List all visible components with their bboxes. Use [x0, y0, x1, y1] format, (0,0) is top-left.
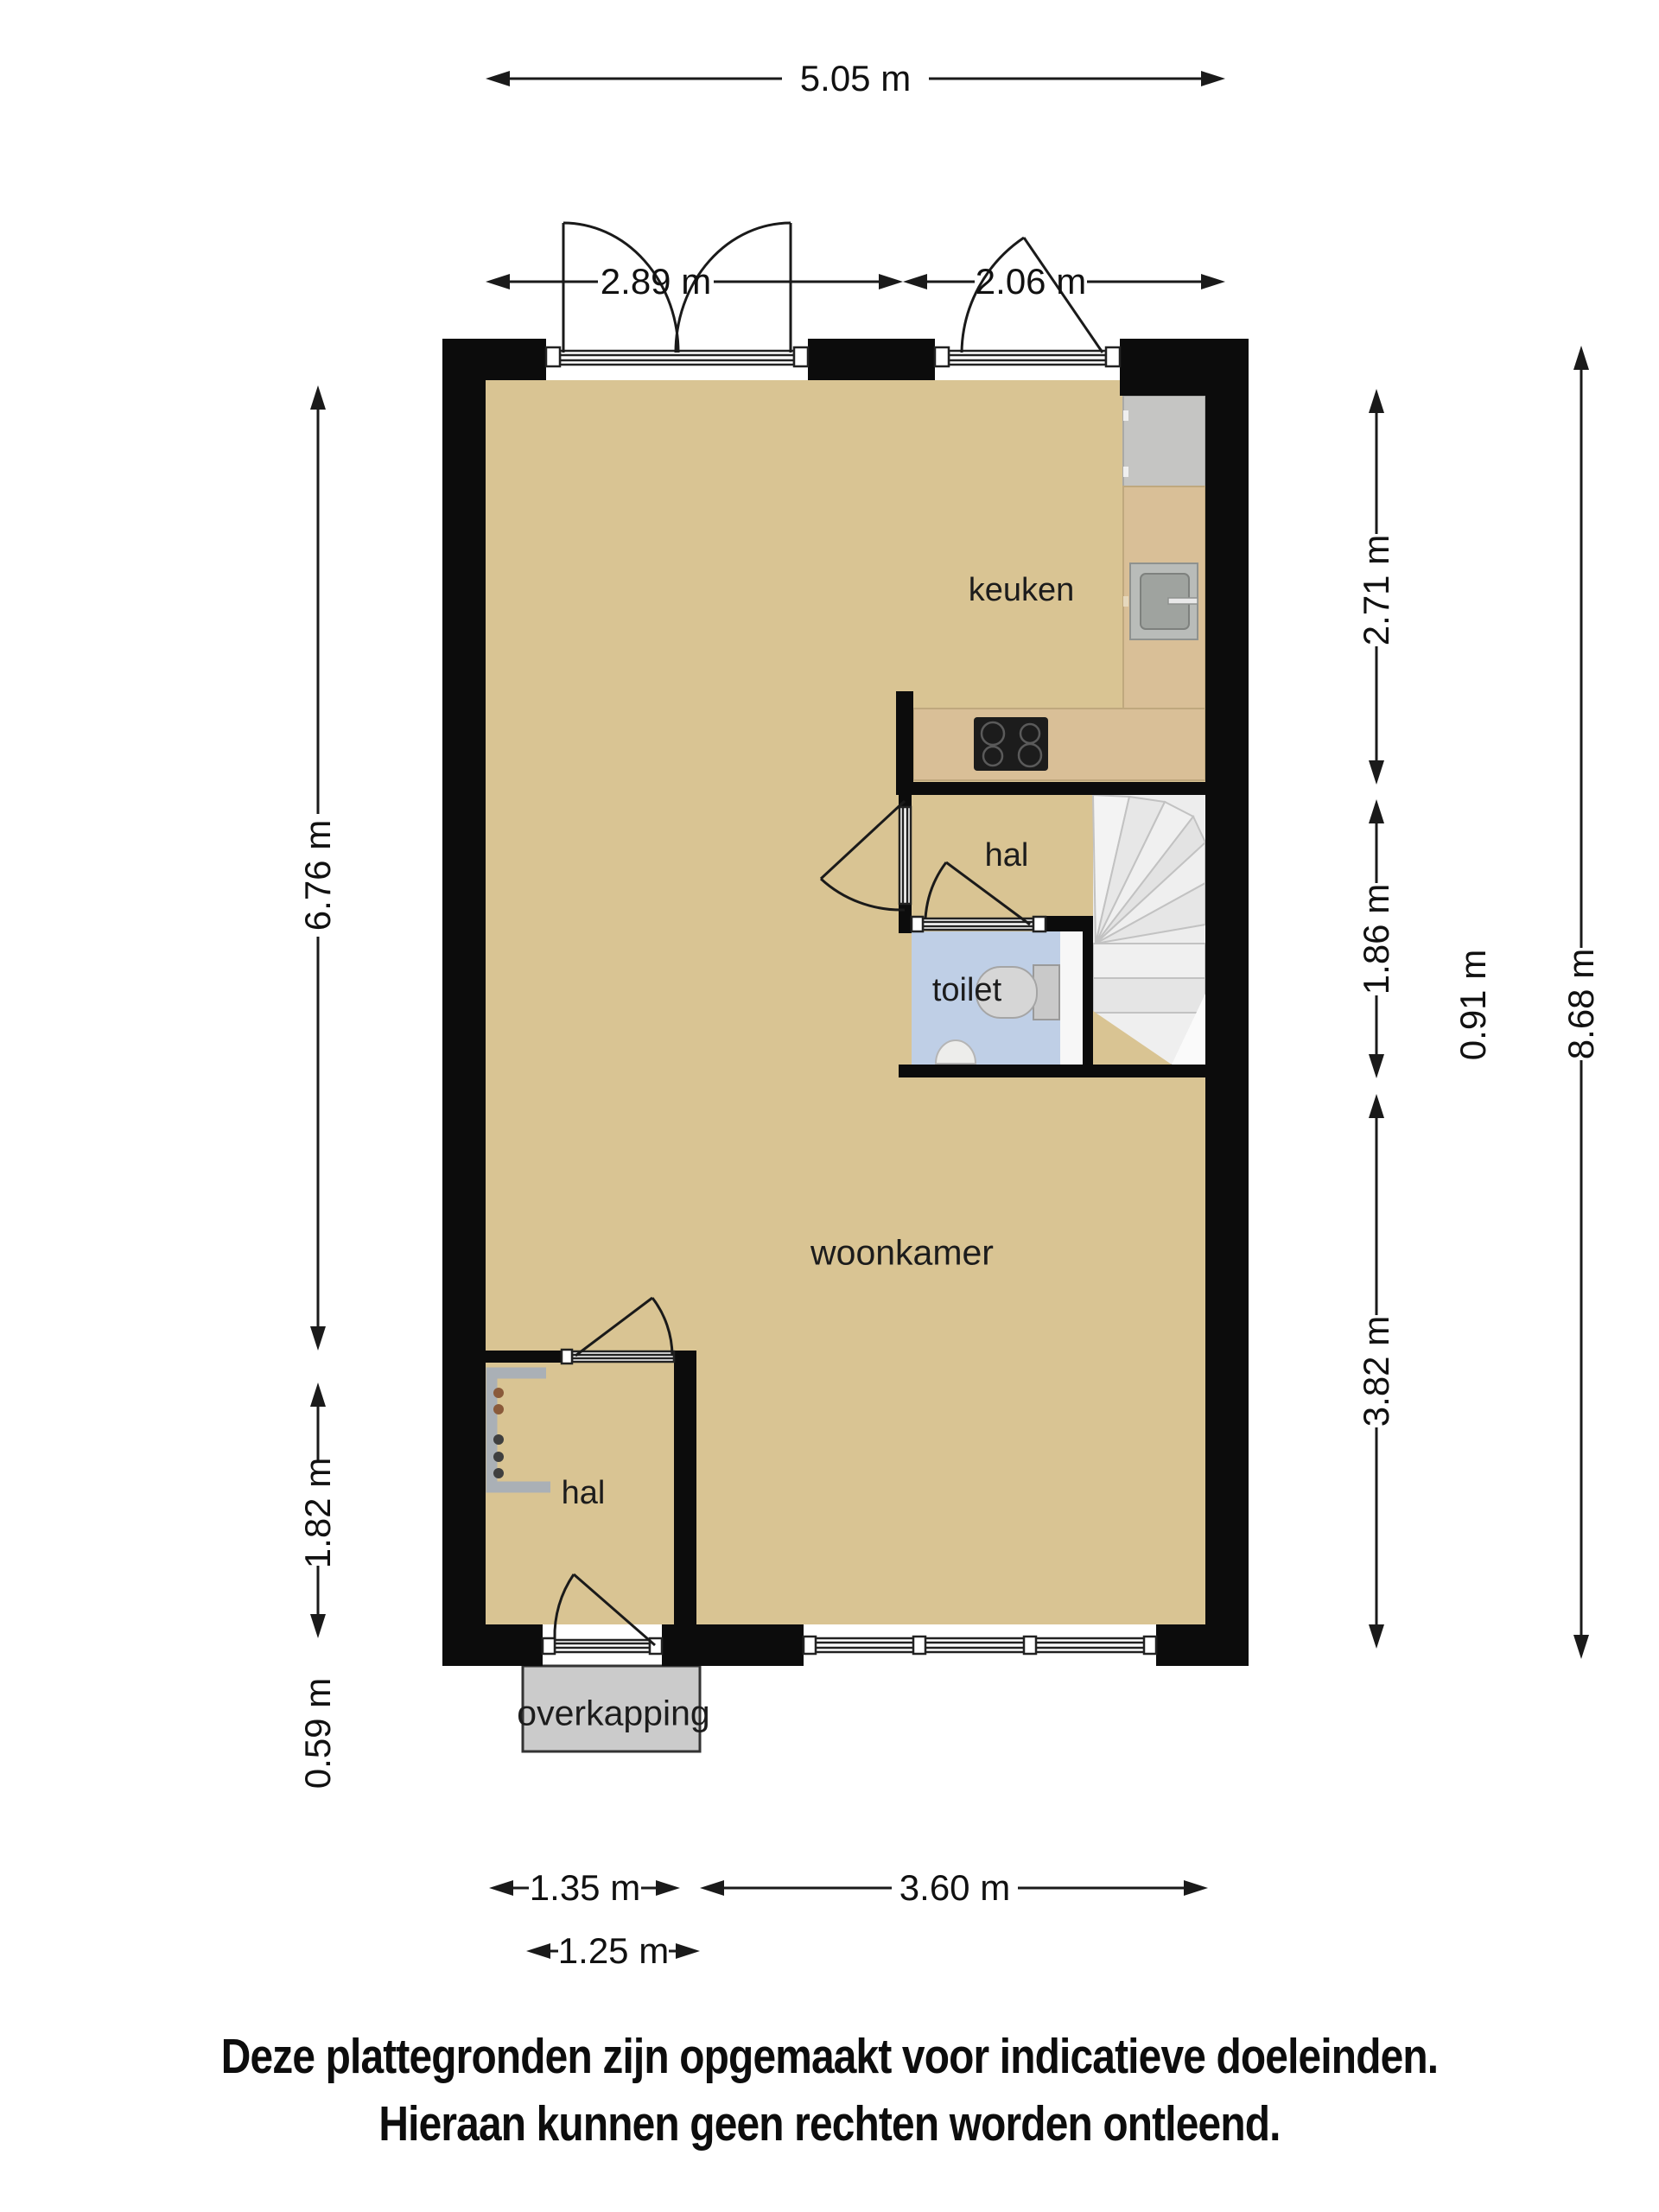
- room-label-hal-top: hal: [985, 839, 1029, 872]
- dim-bottom-overkapping: 1.25 m: [558, 1933, 669, 1969]
- front-door-frame: [543, 1638, 662, 1654]
- dim-right-inner: 0.91 m: [1455, 950, 1491, 1060]
- wall-toilet-stub: [1044, 916, 1093, 931]
- dim-left-upper: 6.76 m: [300, 820, 336, 931]
- dim-right-upper: 2.71 m: [1358, 535, 1395, 645]
- dim-right-lower: 3.82 m: [1358, 1316, 1395, 1427]
- room-label-hal-bottom: hal: [562, 1477, 606, 1510]
- living-room-window: [804, 1637, 1156, 1654]
- wall-top-left: [442, 339, 546, 380]
- wall-top-right: [1120, 339, 1249, 396]
- wall-hall-divider: [674, 1351, 696, 1624]
- stove: [974, 717, 1048, 771]
- wall-hall-lower: [486, 1351, 562, 1363]
- wall-toilet-bottom: [899, 1065, 1205, 1077]
- staircase: [1093, 795, 1205, 1065]
- dim-left-middle: 1.82 m: [300, 1458, 336, 1568]
- floorplan-page: keuken hal toilet woonkamer hal overkapp…: [0, 0, 1659, 2212]
- toilet-door-frame: [912, 917, 1046, 931]
- wall-right: [1205, 339, 1249, 1666]
- kitchen-appliance: [1123, 396, 1205, 486]
- kitchen-sink: [1130, 563, 1198, 639]
- wall-bottom-middle: [662, 1624, 804, 1666]
- disclaimer: Deze plattegronden zijn opgemaakt voor i…: [0, 2029, 1659, 2163]
- wall-kitchen-hall: [896, 782, 1205, 795]
- coat-hook: [493, 1468, 504, 1478]
- floorplan-drawing: [0, 0, 1659, 2212]
- dim-top-left: 2.89 m: [601, 264, 711, 300]
- room-label-woonkamer: woonkamer: [810, 1236, 994, 1271]
- dim-right-total: 8.68 m: [1563, 949, 1599, 1059]
- coat-hook: [493, 1404, 504, 1414]
- lower-hall-door-frame: [562, 1350, 674, 1363]
- room-label-toilet: toilet: [932, 974, 1001, 1007]
- wall-toilet-right: [1083, 931, 1093, 1065]
- wall-kitchen-stub: [896, 691, 913, 795]
- coat-hook: [493, 1434, 504, 1445]
- coat-hook: [493, 1388, 504, 1398]
- dim-top-right: 2.06 m: [976, 264, 1086, 300]
- hall-door-frame: [899, 807, 911, 904]
- room-label-keuken: keuken: [969, 574, 1075, 607]
- disclaimer-line-1: Deze plattegronden zijn opgemaakt voor i…: [133, 2029, 1527, 2086]
- wall-top-middle: [808, 339, 935, 380]
- dim-left-lower: 0.59 m: [300, 1678, 336, 1789]
- wall-bottom-right: [1156, 1624, 1249, 1666]
- dim-bottom-right: 3.60 m: [899, 1870, 1010, 1906]
- coat-hook: [493, 1452, 504, 1462]
- wall-left: [442, 339, 486, 1666]
- room-label-overkapping: overkapping: [517, 1696, 709, 1732]
- dim-right-middle: 1.86 m: [1358, 884, 1395, 995]
- dim-bottom-left: 1.35 m: [530, 1870, 640, 1906]
- wall-bottom-left: [442, 1624, 543, 1666]
- dim-top-total: 5.05 m: [800, 60, 911, 97]
- wall-hall-stub: [899, 904, 912, 933]
- disclaimer-line-2: Hieraan kunnen geen rechten worden ontle…: [133, 2096, 1527, 2153]
